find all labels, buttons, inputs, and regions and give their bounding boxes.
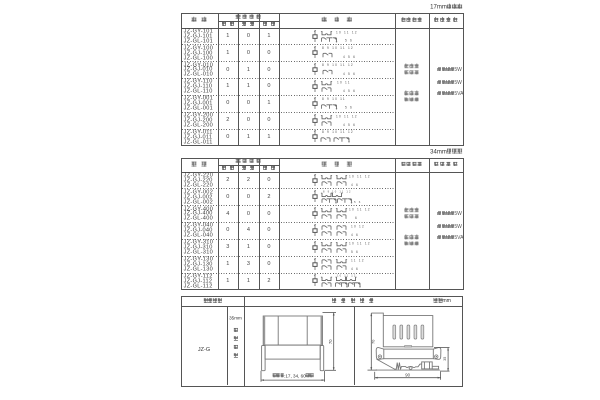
svg-text:10 11: 10 11 xyxy=(337,81,351,85)
svg-text:5 6: 5 6 xyxy=(345,38,353,42)
svg-text:10 11 12: 10 11 12 xyxy=(349,174,371,178)
svg-text:10 11 12: 10 11 12 xyxy=(336,114,358,118)
svg-text:8 9 10 11 12: 8 9 10 11 12 xyxy=(322,131,354,135)
svg-text:10 11 12: 10 11 12 xyxy=(336,30,358,34)
svg-text:10 12: 10 12 xyxy=(351,224,365,228)
svg-text:6: 6 xyxy=(355,216,358,220)
svg-text:70: 70 xyxy=(328,338,333,343)
svg-text:4 5 6: 4 5 6 xyxy=(343,89,356,93)
svg-text:5 6: 5 6 xyxy=(354,201,362,205)
svg-text:70: 70 xyxy=(370,338,375,343)
svg-text:5 6: 5 6 xyxy=(345,105,353,109)
svg-text:10 11 12: 10 11 12 xyxy=(349,241,371,245)
svg-text:35: 35 xyxy=(443,356,447,360)
svg-text:8 9 10 11 12: 8 9 10 11 12 xyxy=(322,63,354,67)
svg-text:5 6: 5 6 xyxy=(351,250,359,254)
svg-text:90: 90 xyxy=(405,372,410,377)
svg-text:4 5 6: 4 5 6 xyxy=(343,122,356,126)
svg-text:4 6: 4 6 xyxy=(351,233,359,237)
svg-text:8 9 10 11 12: 8 9 10 11 12 xyxy=(323,190,352,194)
svg-text:8 9 10 11 12: 8 9 10 11 12 xyxy=(322,47,354,51)
svg-text:4 5 6: 4 5 6 xyxy=(343,55,356,59)
svg-text:4 5 6: 4 5 6 xyxy=(343,72,356,76)
svg-text:8 9 10 11: 8 9 10 11 xyxy=(322,97,346,101)
svg-text:10 11 12: 10 11 12 xyxy=(349,208,371,212)
svg-text:4 6: 4 6 xyxy=(351,182,359,186)
svg-text:11 12: 11 12 xyxy=(351,258,365,262)
svg-text:4 6: 4 6 xyxy=(351,266,359,270)
